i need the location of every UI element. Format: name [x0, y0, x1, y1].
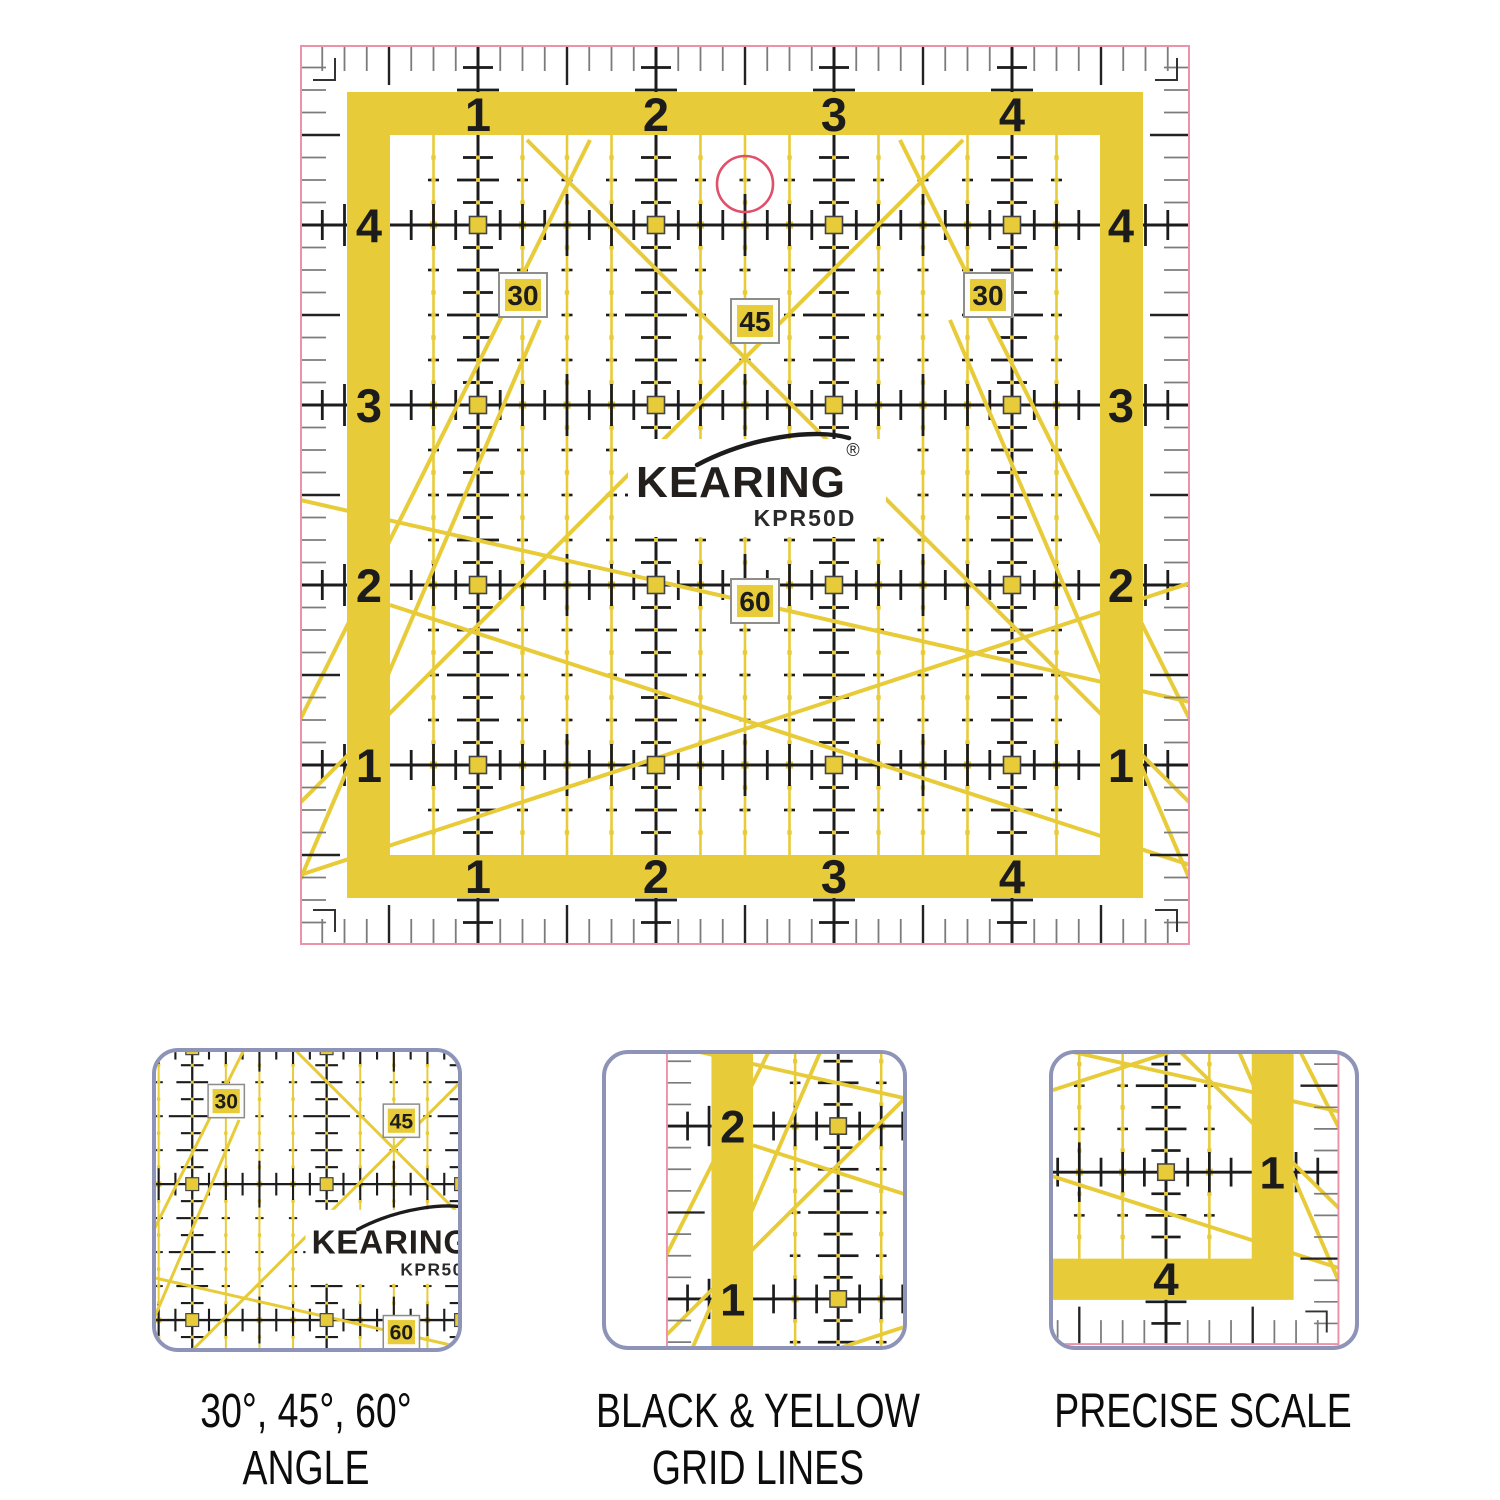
caption-text: BLACK & YELLOW	[596, 1385, 920, 1438]
caption-text: 30°, 45°, 60° ANGLE	[200, 1385, 411, 1495]
thumbnail-grid-lines	[602, 1050, 907, 1350]
feature-caption-angle: 30°, 45°, 60° ANGLE	[134, 1383, 477, 1497]
thumbnail-angle-lines	[152, 1048, 462, 1352]
thumbnail-precise-scale	[1049, 1050, 1359, 1350]
feature-caption-scale: PRECISE SCALE	[1031, 1383, 1374, 1440]
caption-text: PRECISE SCALE	[1054, 1385, 1352, 1438]
caption-text: GRID LINES	[652, 1442, 864, 1495]
ruler-graphic-main	[300, 45, 1190, 945]
feature-caption-grid: BLACK & YELLOW GRID LINES	[586, 1383, 929, 1497]
product-image: 123412344321432130453060KEARING®KPR50D 3…	[0, 0, 1500, 1500]
